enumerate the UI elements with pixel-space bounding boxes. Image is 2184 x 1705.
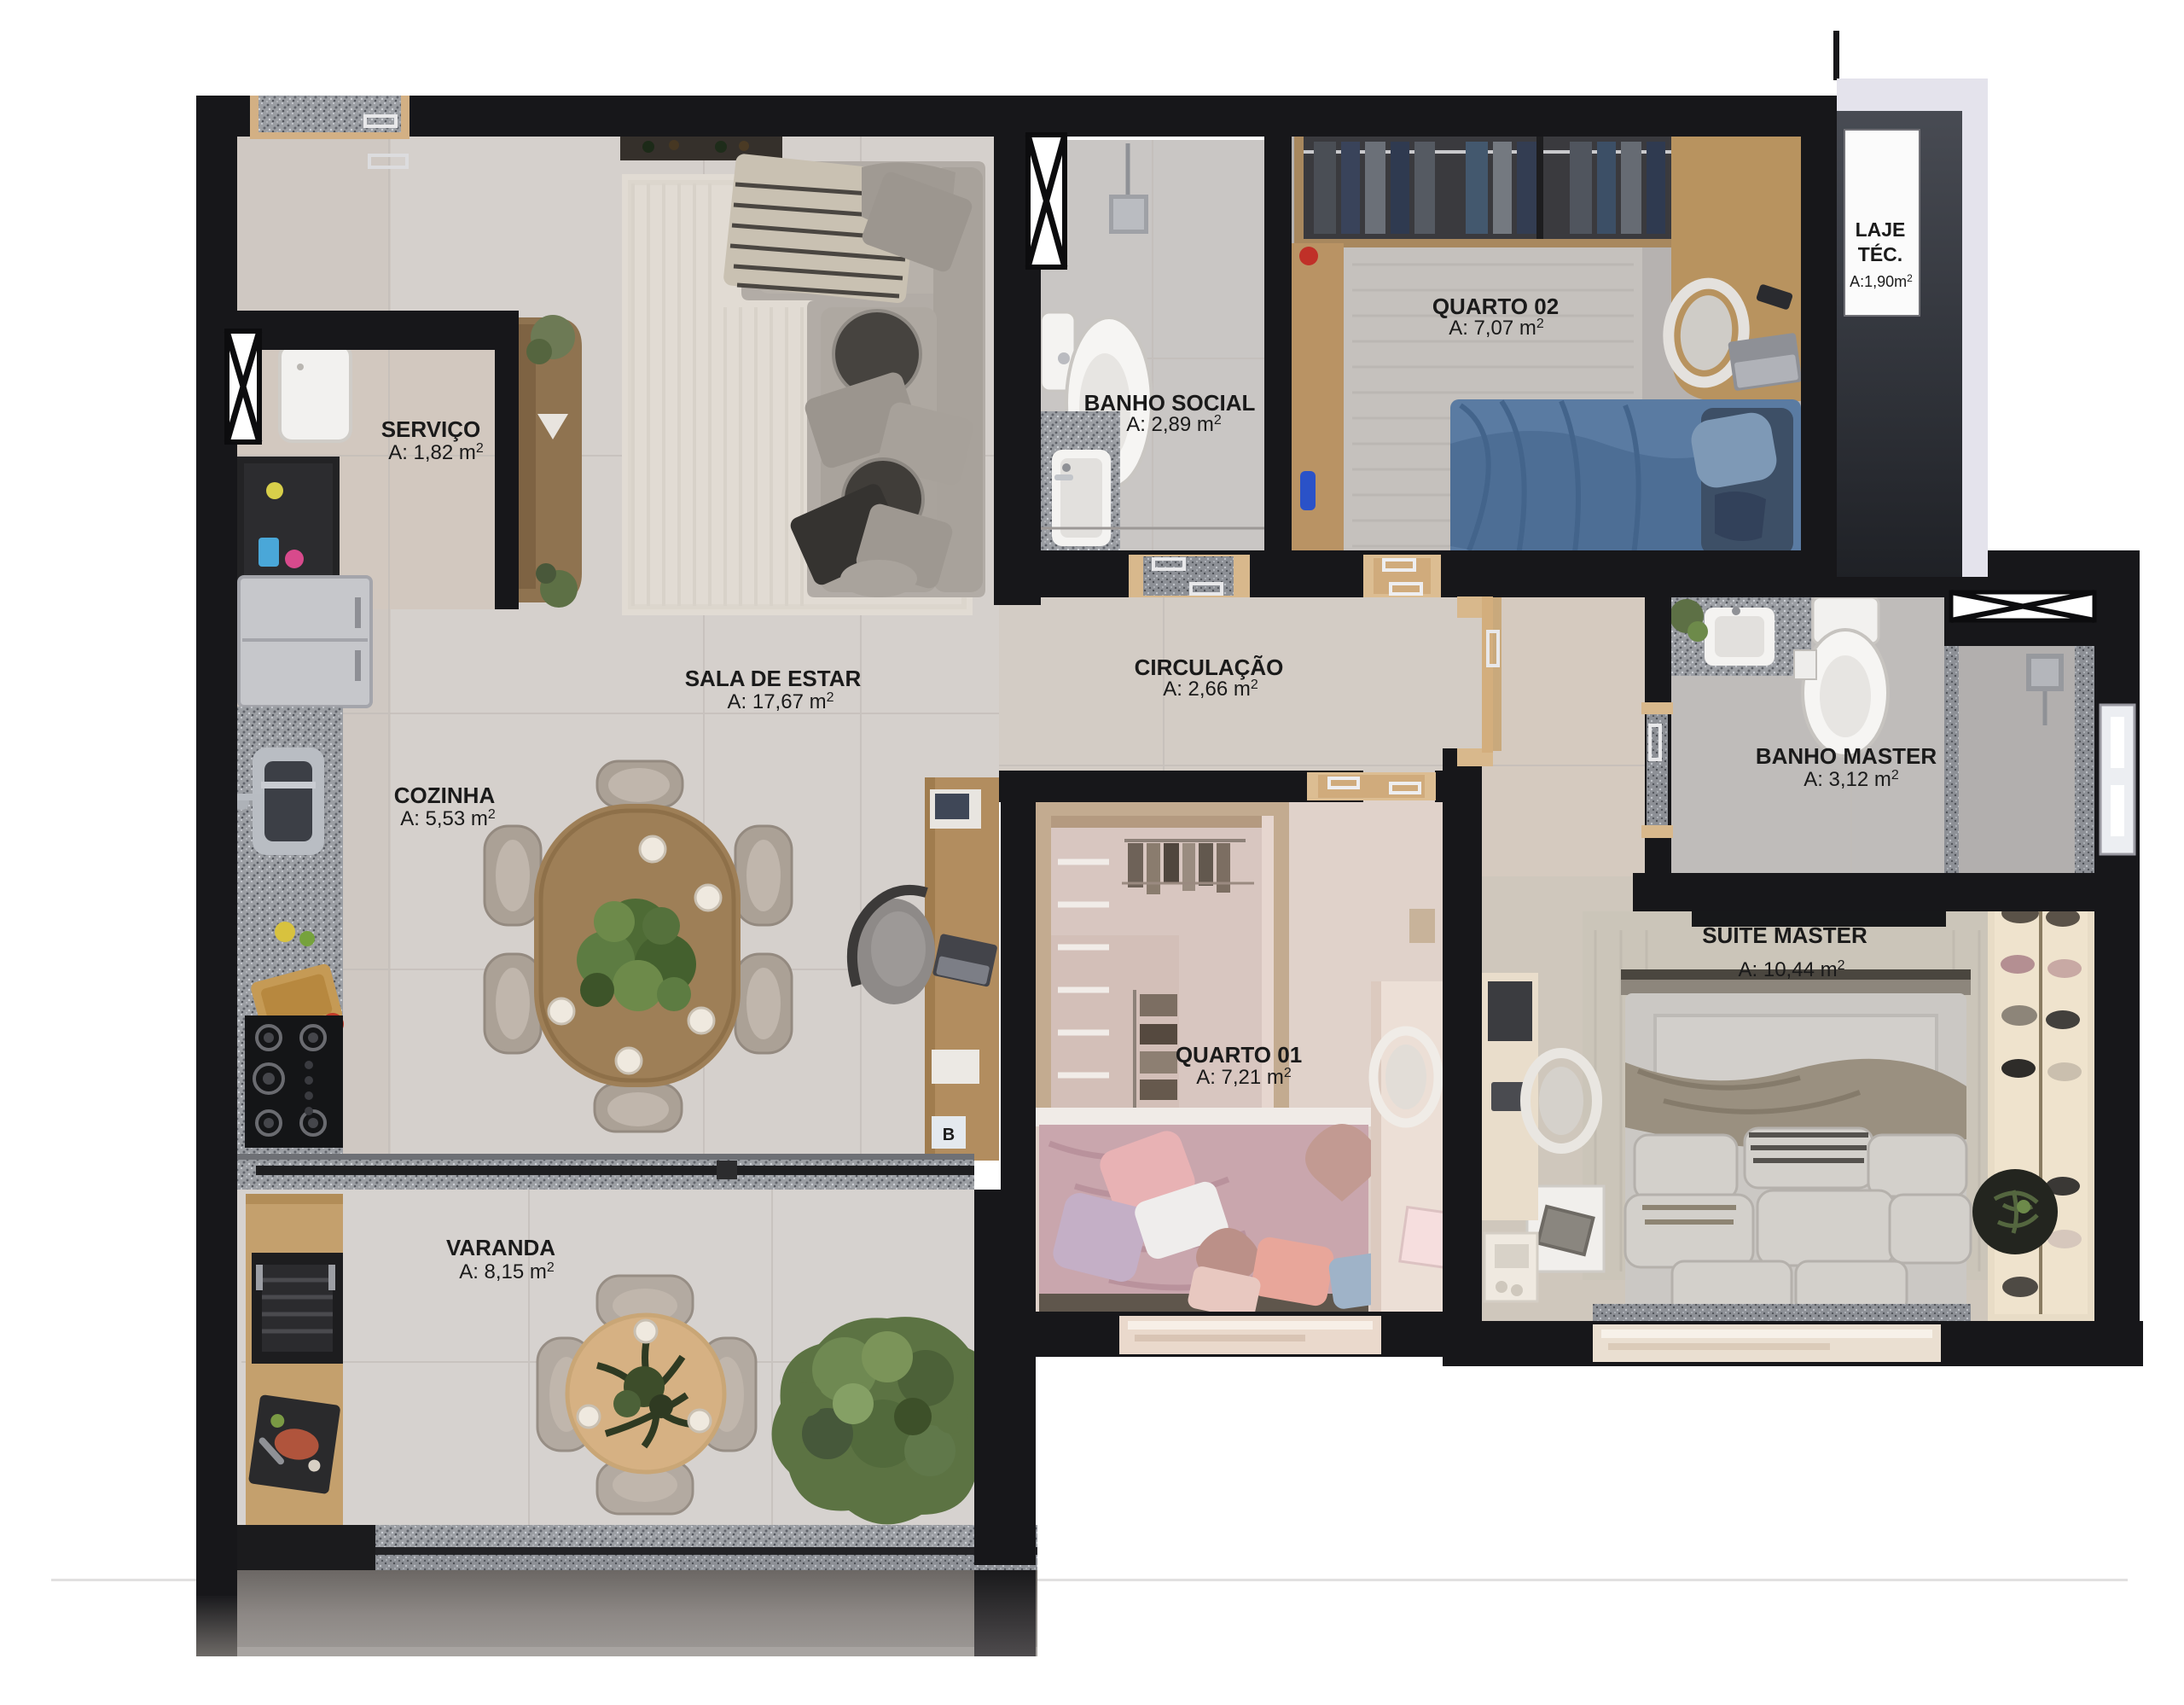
svg-text:SERVIÇO: SERVIÇO bbox=[381, 416, 481, 442]
svg-text:A: 2,89 m2: A: 2,89 m2 bbox=[1126, 413, 1222, 436]
svg-text:A: 3,12 m2: A: 3,12 m2 bbox=[1804, 768, 1899, 791]
svg-text:A: 7,21 m2: A: 7,21 m2 bbox=[1196, 1066, 1292, 1089]
svg-text:A: 5,53 m2: A: 5,53 m2 bbox=[400, 807, 496, 830]
svg-text:SALA DE ESTAR: SALA DE ESTAR bbox=[685, 666, 862, 691]
svg-text:A: 8,15 m2: A: 8,15 m2 bbox=[459, 1260, 555, 1283]
svg-text:A: 2,66 m2: A: 2,66 m2 bbox=[1163, 678, 1258, 701]
svg-text:CIRCULAÇÃO: CIRCULAÇÃO bbox=[1135, 655, 1284, 680]
svg-text:LAJE: LAJE bbox=[1856, 218, 1906, 241]
svg-text:QUARTO 02: QUARTO 02 bbox=[1432, 294, 1559, 319]
svg-text:TÉC.: TÉC. bbox=[1858, 242, 1902, 265]
svg-text:VARANDA: VARANDA bbox=[446, 1235, 555, 1260]
svg-text:A:1,90m2: A:1,90m2 bbox=[1850, 272, 1913, 290]
svg-text:A: 17,67 m2: A: 17,67 m2 bbox=[728, 690, 834, 713]
svg-text:SUÍTE MASTER: SUÍTE MASTER bbox=[1702, 922, 1867, 948]
svg-text:B: B bbox=[943, 1126, 955, 1144]
svg-text:QUARTO 01: QUARTO 01 bbox=[1176, 1042, 1302, 1068]
svg-text:A: 1,82 m2: A: 1,82 m2 bbox=[388, 441, 484, 464]
svg-text:BANHO SOCIAL: BANHO SOCIAL bbox=[1084, 390, 1256, 416]
svg-text:BANHO MASTER: BANHO MASTER bbox=[1756, 743, 1937, 769]
svg-text:A: 7,07 m2: A: 7,07 m2 bbox=[1449, 317, 1544, 340]
svg-text:COZINHA: COZINHA bbox=[394, 783, 496, 808]
svg-text:A: 10,44 m2: A: 10,44 m2 bbox=[1739, 958, 1845, 981]
